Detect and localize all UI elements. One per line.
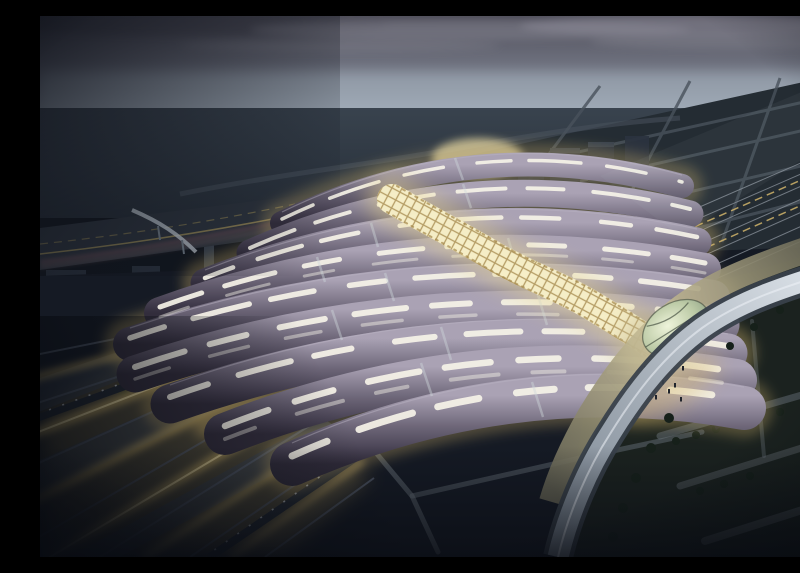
vignette [40, 16, 800, 557]
architectural-rendering [40, 16, 800, 557]
station-rendering-canvas [40, 16, 800, 557]
